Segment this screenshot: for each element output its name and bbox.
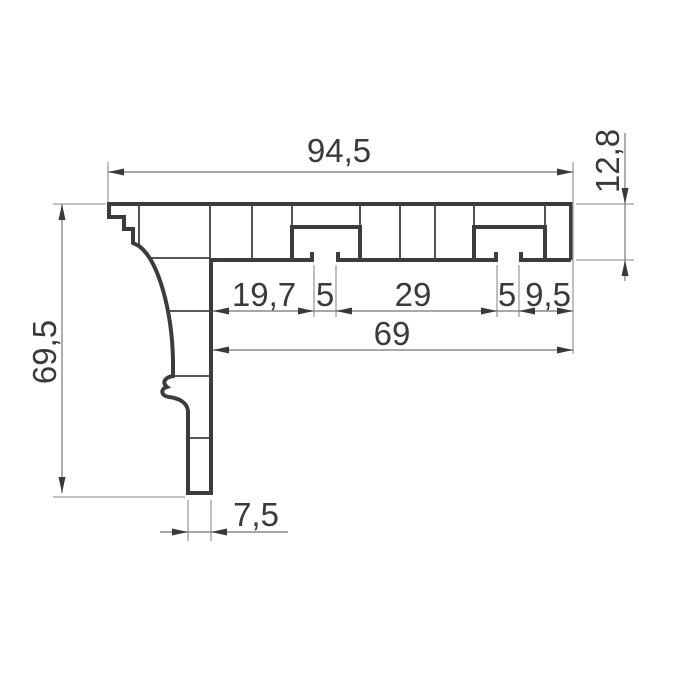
arrowhead-up-icon bbox=[622, 260, 629, 276]
flange-top-right-edge bbox=[109, 204, 571, 260]
arrowhead-right-icon bbox=[172, 529, 188, 536]
dim-overall-height: 69,5 bbox=[26, 204, 185, 497]
dim-label-overall-height: 69,5 bbox=[26, 320, 63, 384]
dim-label-slot1-width: 5 bbox=[316, 276, 334, 313]
arrowhead-left-icon bbox=[211, 529, 227, 536]
arrowhead-right-icon bbox=[557, 169, 573, 176]
technical-drawing: 94,5 12,8 69,5 19,7 5 29 5 9,5 69 bbox=[0, 0, 674, 674]
profile-outline bbox=[109, 202, 571, 493]
dim-top-flange-height: 12,8 bbox=[576, 129, 634, 281]
dim-leg-thickness: 7,5 bbox=[160, 496, 288, 541]
arrowhead-left-icon bbox=[213, 308, 229, 315]
dim-label-web-to-slot1: 19,7 bbox=[232, 276, 296, 313]
arrowhead-down-icon bbox=[59, 477, 66, 493]
dim-label-slot2-width: 5 bbox=[498, 276, 516, 313]
dim-label-leg-thickness: 7,5 bbox=[233, 496, 279, 533]
screw-slot-1 bbox=[292, 227, 360, 259]
dim-label-top-flange-height: 12,8 bbox=[589, 129, 626, 193]
left-step-cove-leg-web bbox=[109, 202, 211, 493]
dim-slot-position-row: 19,7 5 29 5 9,5 bbox=[213, 265, 573, 317]
dim-label-slot-spacing: 29 bbox=[395, 276, 432, 313]
slot-channel-lips bbox=[312, 252, 521, 258]
dim-overall-width: 94,5 bbox=[108, 132, 573, 354]
flange-division-lines bbox=[139, 205, 545, 259]
arrowhead-right-icon bbox=[481, 308, 497, 315]
dim-label-overall-width: 94,5 bbox=[307, 132, 371, 169]
profile-internal-divisions bbox=[139, 205, 545, 438]
extension-line bbox=[53, 204, 185, 497]
arrowhead-left-icon bbox=[213, 347, 229, 354]
arrowhead-left-icon bbox=[336, 308, 352, 315]
arrowhead-right-icon bbox=[557, 347, 573, 354]
arrowhead-right-icon bbox=[298, 308, 314, 315]
arrowhead-up-icon bbox=[59, 204, 66, 220]
dim-web-to-right-edge: 69 bbox=[213, 315, 573, 354]
dim-label-web-to-right-edge: 69 bbox=[374, 315, 411, 352]
screw-slot-2 bbox=[474, 227, 545, 259]
dim-label-slot2-to-edge: 9,5 bbox=[525, 276, 571, 313]
arrowhead-left-icon bbox=[108, 169, 124, 176]
extension-line bbox=[188, 500, 211, 541]
drawing-canvas: 94,5 12,8 69,5 19,7 5 29 5 9,5 69 bbox=[0, 0, 674, 674]
